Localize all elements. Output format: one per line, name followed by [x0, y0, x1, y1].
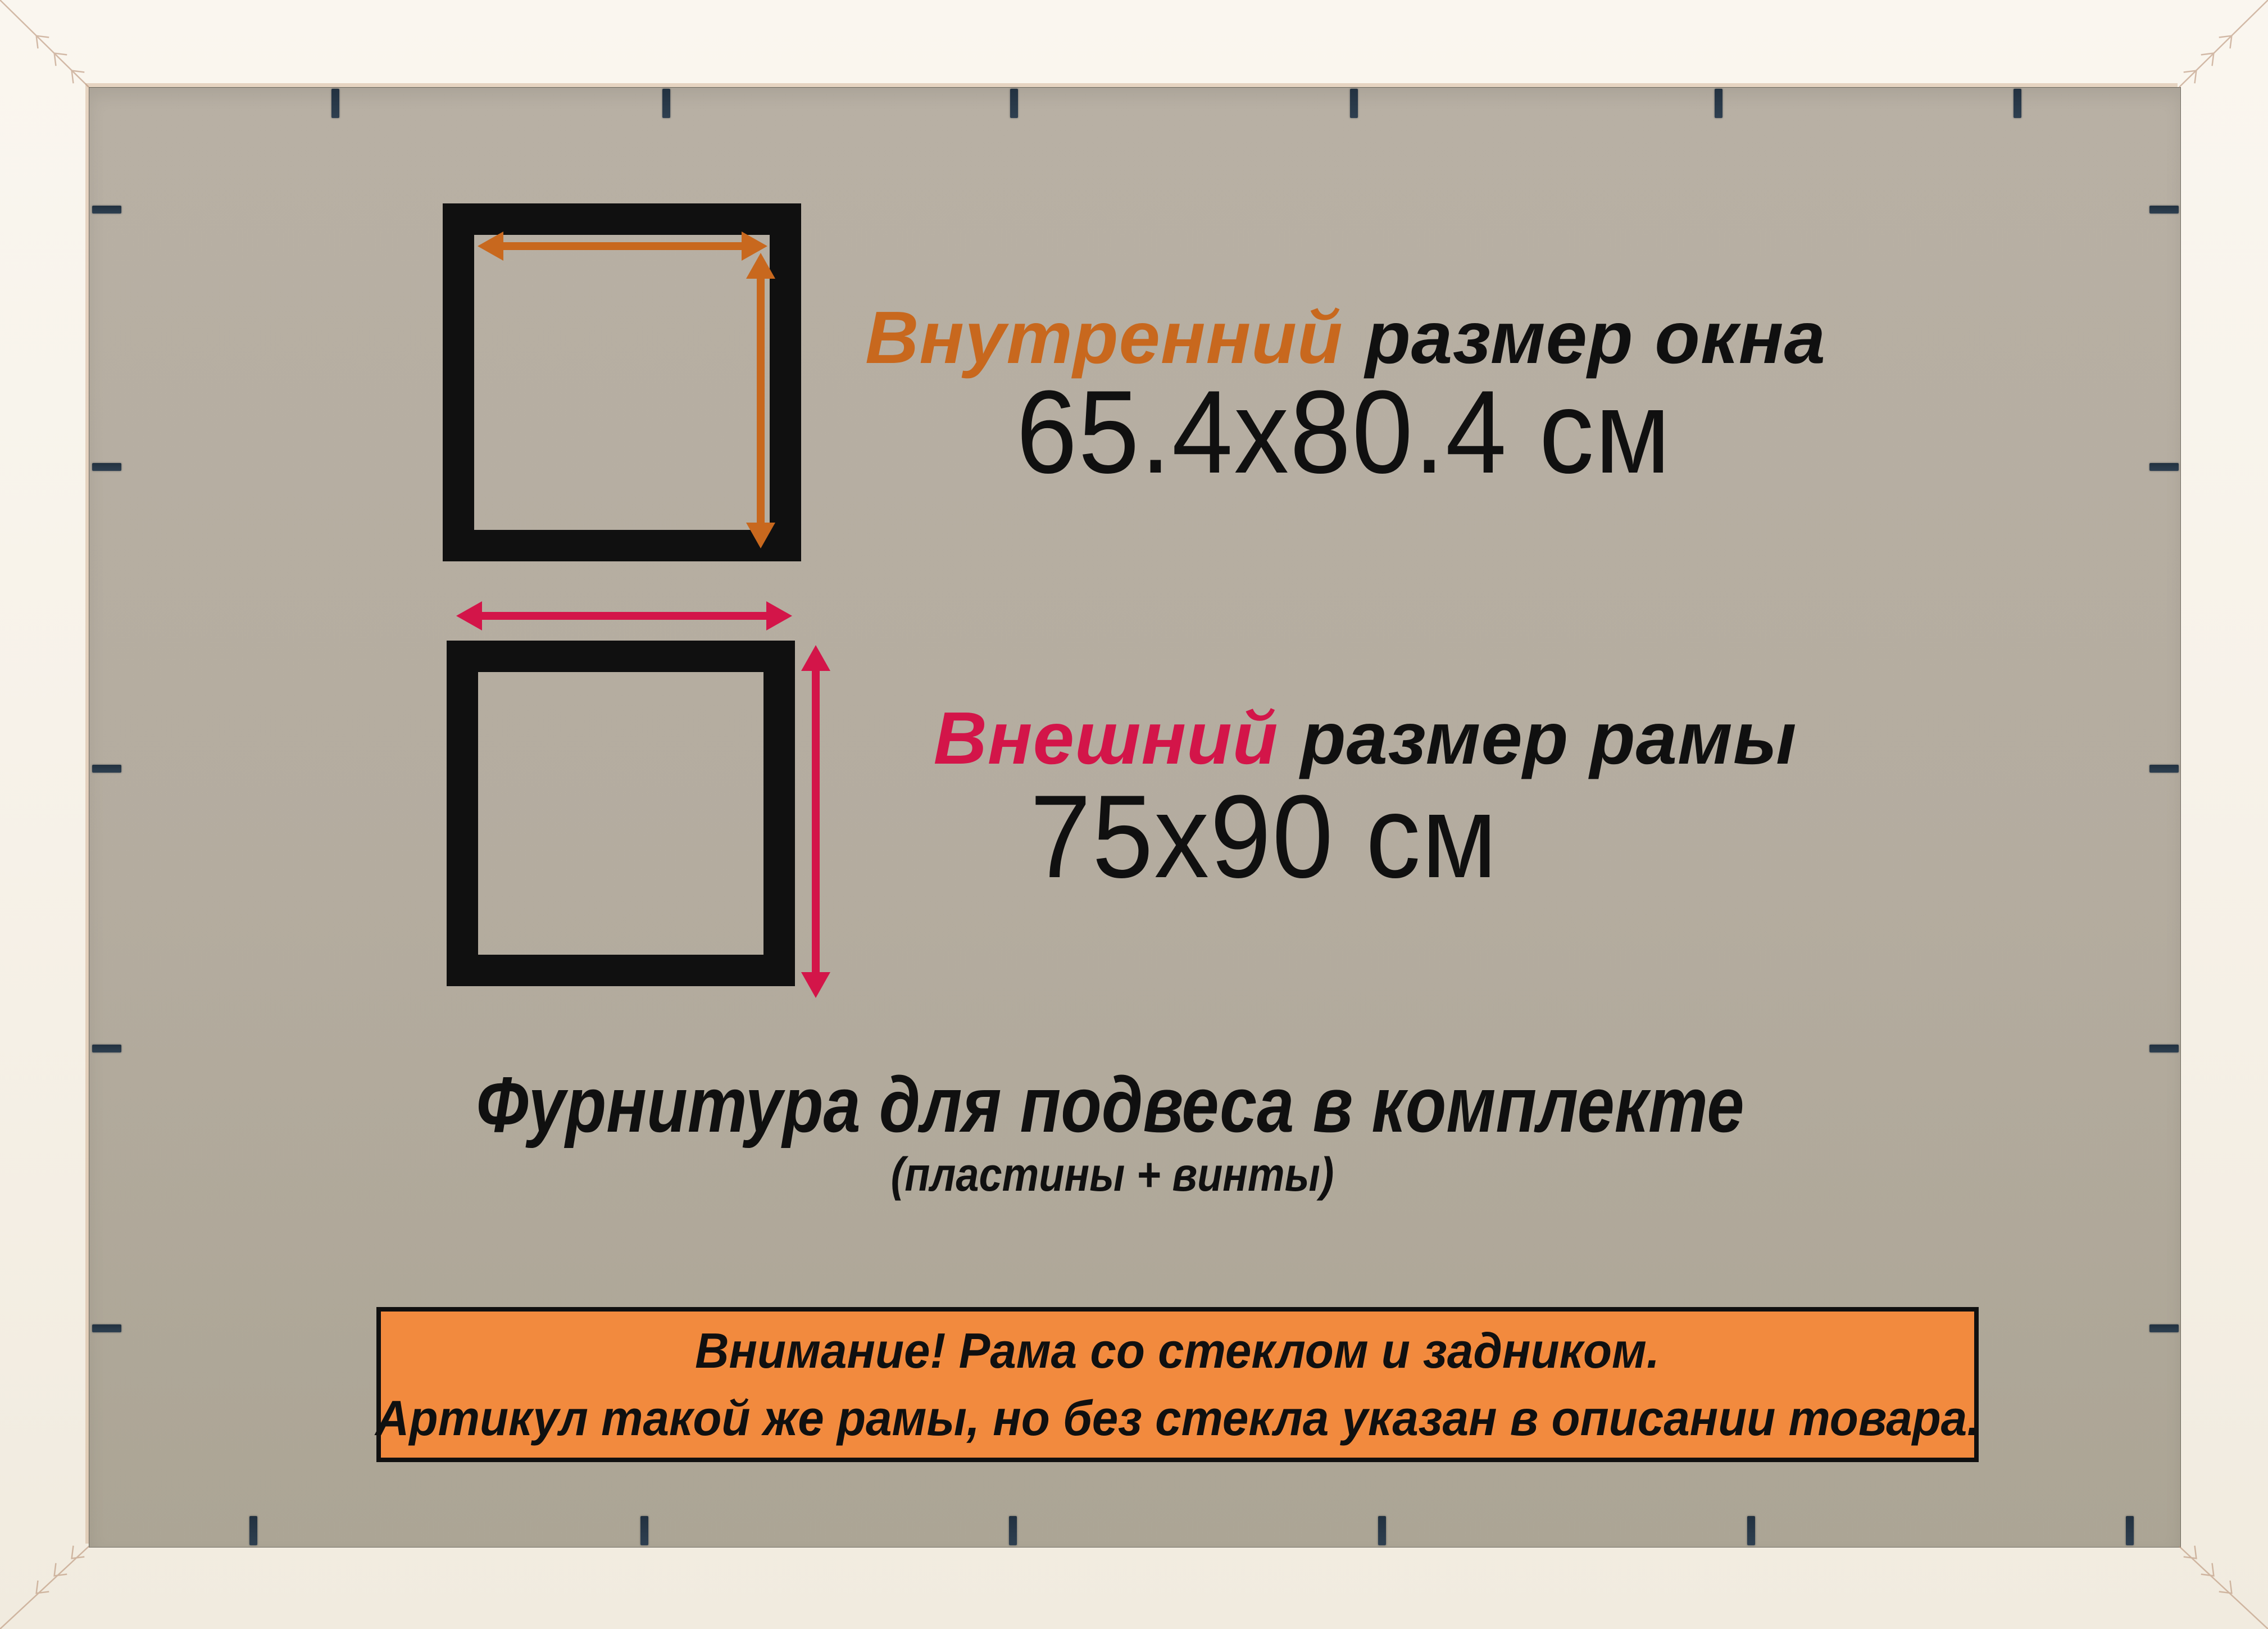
hardware-note-detail: (пластины + винты) [891, 1147, 1334, 1202]
staple-icon [92, 765, 121, 773]
hardware-note: Фурнитура для подвеса в комплекте [476, 1059, 1744, 1150]
frame-back-photo: Внутреннийразмер окна 65.4x80.4 см Внешн… [0, 0, 2268, 1629]
outer-size-label: Внешнийразмер рамы [934, 696, 1797, 781]
inner-window-diagram-square [443, 203, 801, 561]
staple-icon [640, 1516, 648, 1545]
staple-icon [1010, 89, 1018, 118]
staple-icon [2149, 765, 2179, 773]
staple-icon [2014, 89, 2021, 118]
staple-icon [92, 463, 121, 471]
outer-frame-diagram-square [447, 641, 795, 986]
staple-icon [662, 89, 670, 118]
staple-icon [2149, 463, 2179, 471]
staple-icon [2149, 1324, 2179, 1332]
outer-size-label-rest: размер рамы [1301, 697, 1797, 779]
staple-icon [1747, 1516, 1755, 1545]
inner-size-value: 65.4x80.4 см [1016, 364, 1671, 500]
staple-icon [1715, 89, 1722, 118]
banner-line2: Артикул такой же рамы, но без стекла ука… [375, 1390, 1980, 1447]
outer-size-value: 75x90 см [1030, 769, 1498, 905]
staple-icon [92, 1324, 121, 1332]
staple-icon [1378, 1516, 1386, 1545]
banner-line1: Внимание! Рама со стеклом и задником. [696, 1322, 1660, 1380]
staple-icon [249, 1516, 257, 1545]
staple-icon [2126, 1516, 2134, 1545]
attention-banner: Внимание! Рама со стеклом и задником. Ар… [376, 1307, 1979, 1462]
staple-icon [92, 1045, 121, 1052]
staple-icon [92, 206, 121, 214]
staple-icon [1350, 89, 1358, 118]
staple-icon [2149, 1045, 2179, 1052]
outer-size-label-highlight: Внешний [934, 697, 1279, 779]
staple-icon [1009, 1516, 1017, 1545]
staple-icon [2149, 206, 2179, 214]
staple-icon [331, 89, 339, 118]
